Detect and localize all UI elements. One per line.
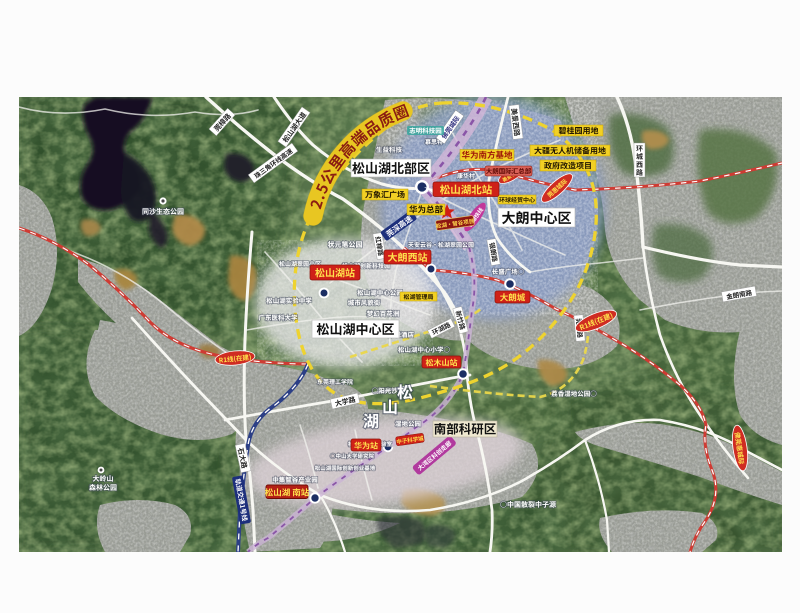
svg-text:长盛广场○: 长盛广场○: [492, 266, 525, 276]
svg-text:○中山大学研究院: ○中山大学研究院: [330, 452, 375, 460]
svg-text:松山湖北部区: 松山湖北部区: [352, 158, 430, 177]
svg-text:状元笔公园: 状元笔公园: [328, 240, 363, 250]
svg-text:松山湖北站: 松山湖北站: [440, 183, 493, 198]
svg-text:松山湖国际创新创业基地: 松山湖国际创新创业基地: [315, 464, 376, 472]
svg-text:大疆无人机储备用地: 大疆无人机储备用地: [534, 146, 606, 157]
svg-text:同沙生态公园: 同沙生态公园: [142, 207, 184, 217]
svg-text:松山湖实验中学: 松山湖实验中学: [266, 295, 312, 305]
svg-text:华为总部: 华为总部: [409, 204, 444, 216]
svg-text:松山湖站: 松山湖站: [315, 265, 355, 280]
svg-text:广东医科大学: 广东医科大学: [259, 312, 299, 322]
svg-text:荔香湿地公园○: 荔香湿地公园○: [551, 388, 597, 398]
svg-text:松木山站: 松木山站: [426, 358, 458, 369]
svg-text:松山湖中心区: 松山湖中心区: [316, 319, 394, 338]
svg-text:天安云谷·松湖翠园公园: 天安云谷·松湖翠园公园: [408, 240, 474, 249]
svg-text:湿地公园: 湿地公园: [395, 418, 422, 428]
svg-text:大朗城: 大朗城: [500, 292, 526, 304]
svg-text:梦幻百花洲: 梦幻百花洲: [367, 308, 400, 318]
svg-text:城市风貌街: 城市风貌街: [348, 297, 381, 307]
svg-text:森林公园: 森林公园: [89, 483, 117, 493]
svg-text:松湖管理局: 松湖管理局: [403, 292, 433, 301]
svg-text:松山湖中心公园: 松山湖中心公园: [357, 287, 403, 297]
svg-text:中集智谷产业园: 中集智谷产业园: [272, 474, 318, 484]
svg-text:华为南方基地: 华为南方基地: [461, 149, 513, 161]
svg-text:松山湖中心小学○: 松山湖中心小学○: [398, 344, 451, 354]
svg-text:山: 山: [382, 394, 398, 418]
svg-text:政府改造项目: 政府改造项目: [544, 161, 592, 172]
svg-text:大朗中心区: 大朗中心区: [502, 208, 572, 228]
svg-text:大朗国际汇总部: 大朗国际汇总部: [486, 166, 532, 176]
svg-text:华为站: 华为站: [354, 441, 378, 452]
svg-text:康华村: 康华村: [457, 171, 475, 180]
svg-text:○中国散裂中子源: ○中国散裂中子源: [500, 500, 556, 510]
svg-text:碧桂园用地: 碧桂园用地: [559, 126, 599, 137]
svg-text:松: 松: [397, 379, 413, 403]
svg-text:环城西路: 环城西路: [636, 144, 643, 178]
svg-text:大朗西站: 大朗西站: [388, 249, 428, 264]
svg-text:生益科技: 生益科技: [376, 144, 403, 154]
svg-text:环球经贸中心: 环球经贸中心: [499, 195, 535, 204]
svg-text:万象汇广场: 万象汇广场: [365, 190, 405, 201]
svg-text:志明科技园: 志明科技园: [409, 125, 442, 135]
svg-text:松山湖 南站: 松山湖 南站: [265, 487, 310, 499]
svg-text:湖: 湖: [363, 408, 379, 432]
svg-text:东莞理工学院: 东莞理工学院: [317, 377, 353, 386]
svg-text:南部科研区: 南部科研区: [434, 419, 497, 438]
